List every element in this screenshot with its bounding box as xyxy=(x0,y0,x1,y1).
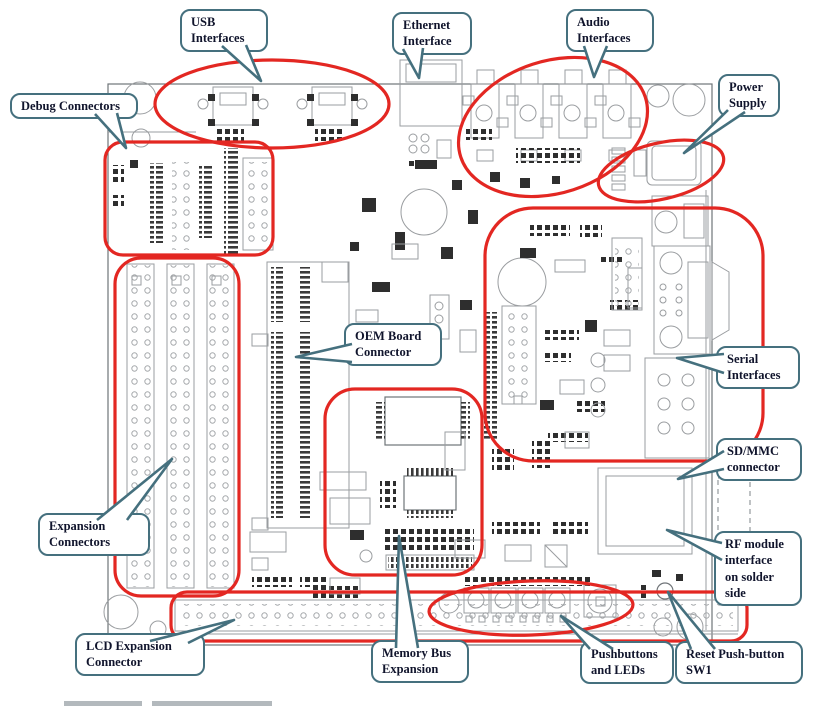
callout-power-supply: Power Supply xyxy=(718,74,780,117)
memory-region-components xyxy=(320,397,474,570)
bottom-components xyxy=(250,432,692,598)
callout-reset-pushbutton: Reset Push-button SW1 xyxy=(675,641,803,684)
board-diagram: USB Interfaces Ethernet Interface Audio … xyxy=(0,0,839,707)
callout-memory-bus-expansion: Memory Bus Expansion xyxy=(371,640,469,683)
serial-region-components xyxy=(484,196,708,442)
callout-serial-interfaces: Serial Interfaces xyxy=(716,346,800,389)
callout-usb-interfaces: USB Interfaces xyxy=(180,9,268,52)
sdmmc-holder xyxy=(645,358,709,458)
callout-audio-interfaces: Audio Interfaces xyxy=(566,9,654,52)
callout-expansion-connectors: Expansion Connectors xyxy=(38,513,150,556)
usb-highlight-region xyxy=(155,60,389,148)
callout-oem-board-connector: OEM Board Connector xyxy=(344,323,442,366)
callout-debug-connectors: Debug Connectors xyxy=(10,93,138,119)
power-connector xyxy=(612,141,701,190)
usb-connectors xyxy=(198,87,367,141)
ethernet-connector xyxy=(400,60,462,168)
callout-lcd-expansion-connector: LCD Expansion Connector xyxy=(75,633,205,676)
db9-serial-connector xyxy=(654,246,729,354)
callout-rf-module-interface: RF module interface on solder side xyxy=(714,531,802,606)
callout-sdmmc-connector: SD/MMC connector xyxy=(716,438,802,481)
reset-pushbutton xyxy=(640,570,683,599)
debug-connectors xyxy=(112,148,273,256)
bottom-cropped-bars xyxy=(64,701,272,706)
callout-pushbuttons-leds: Pushbuttons and LEDs xyxy=(580,641,674,684)
callout-ethernet-interface: Ethernet Interface xyxy=(392,12,472,55)
rf-module-dashed-outline xyxy=(718,478,750,535)
